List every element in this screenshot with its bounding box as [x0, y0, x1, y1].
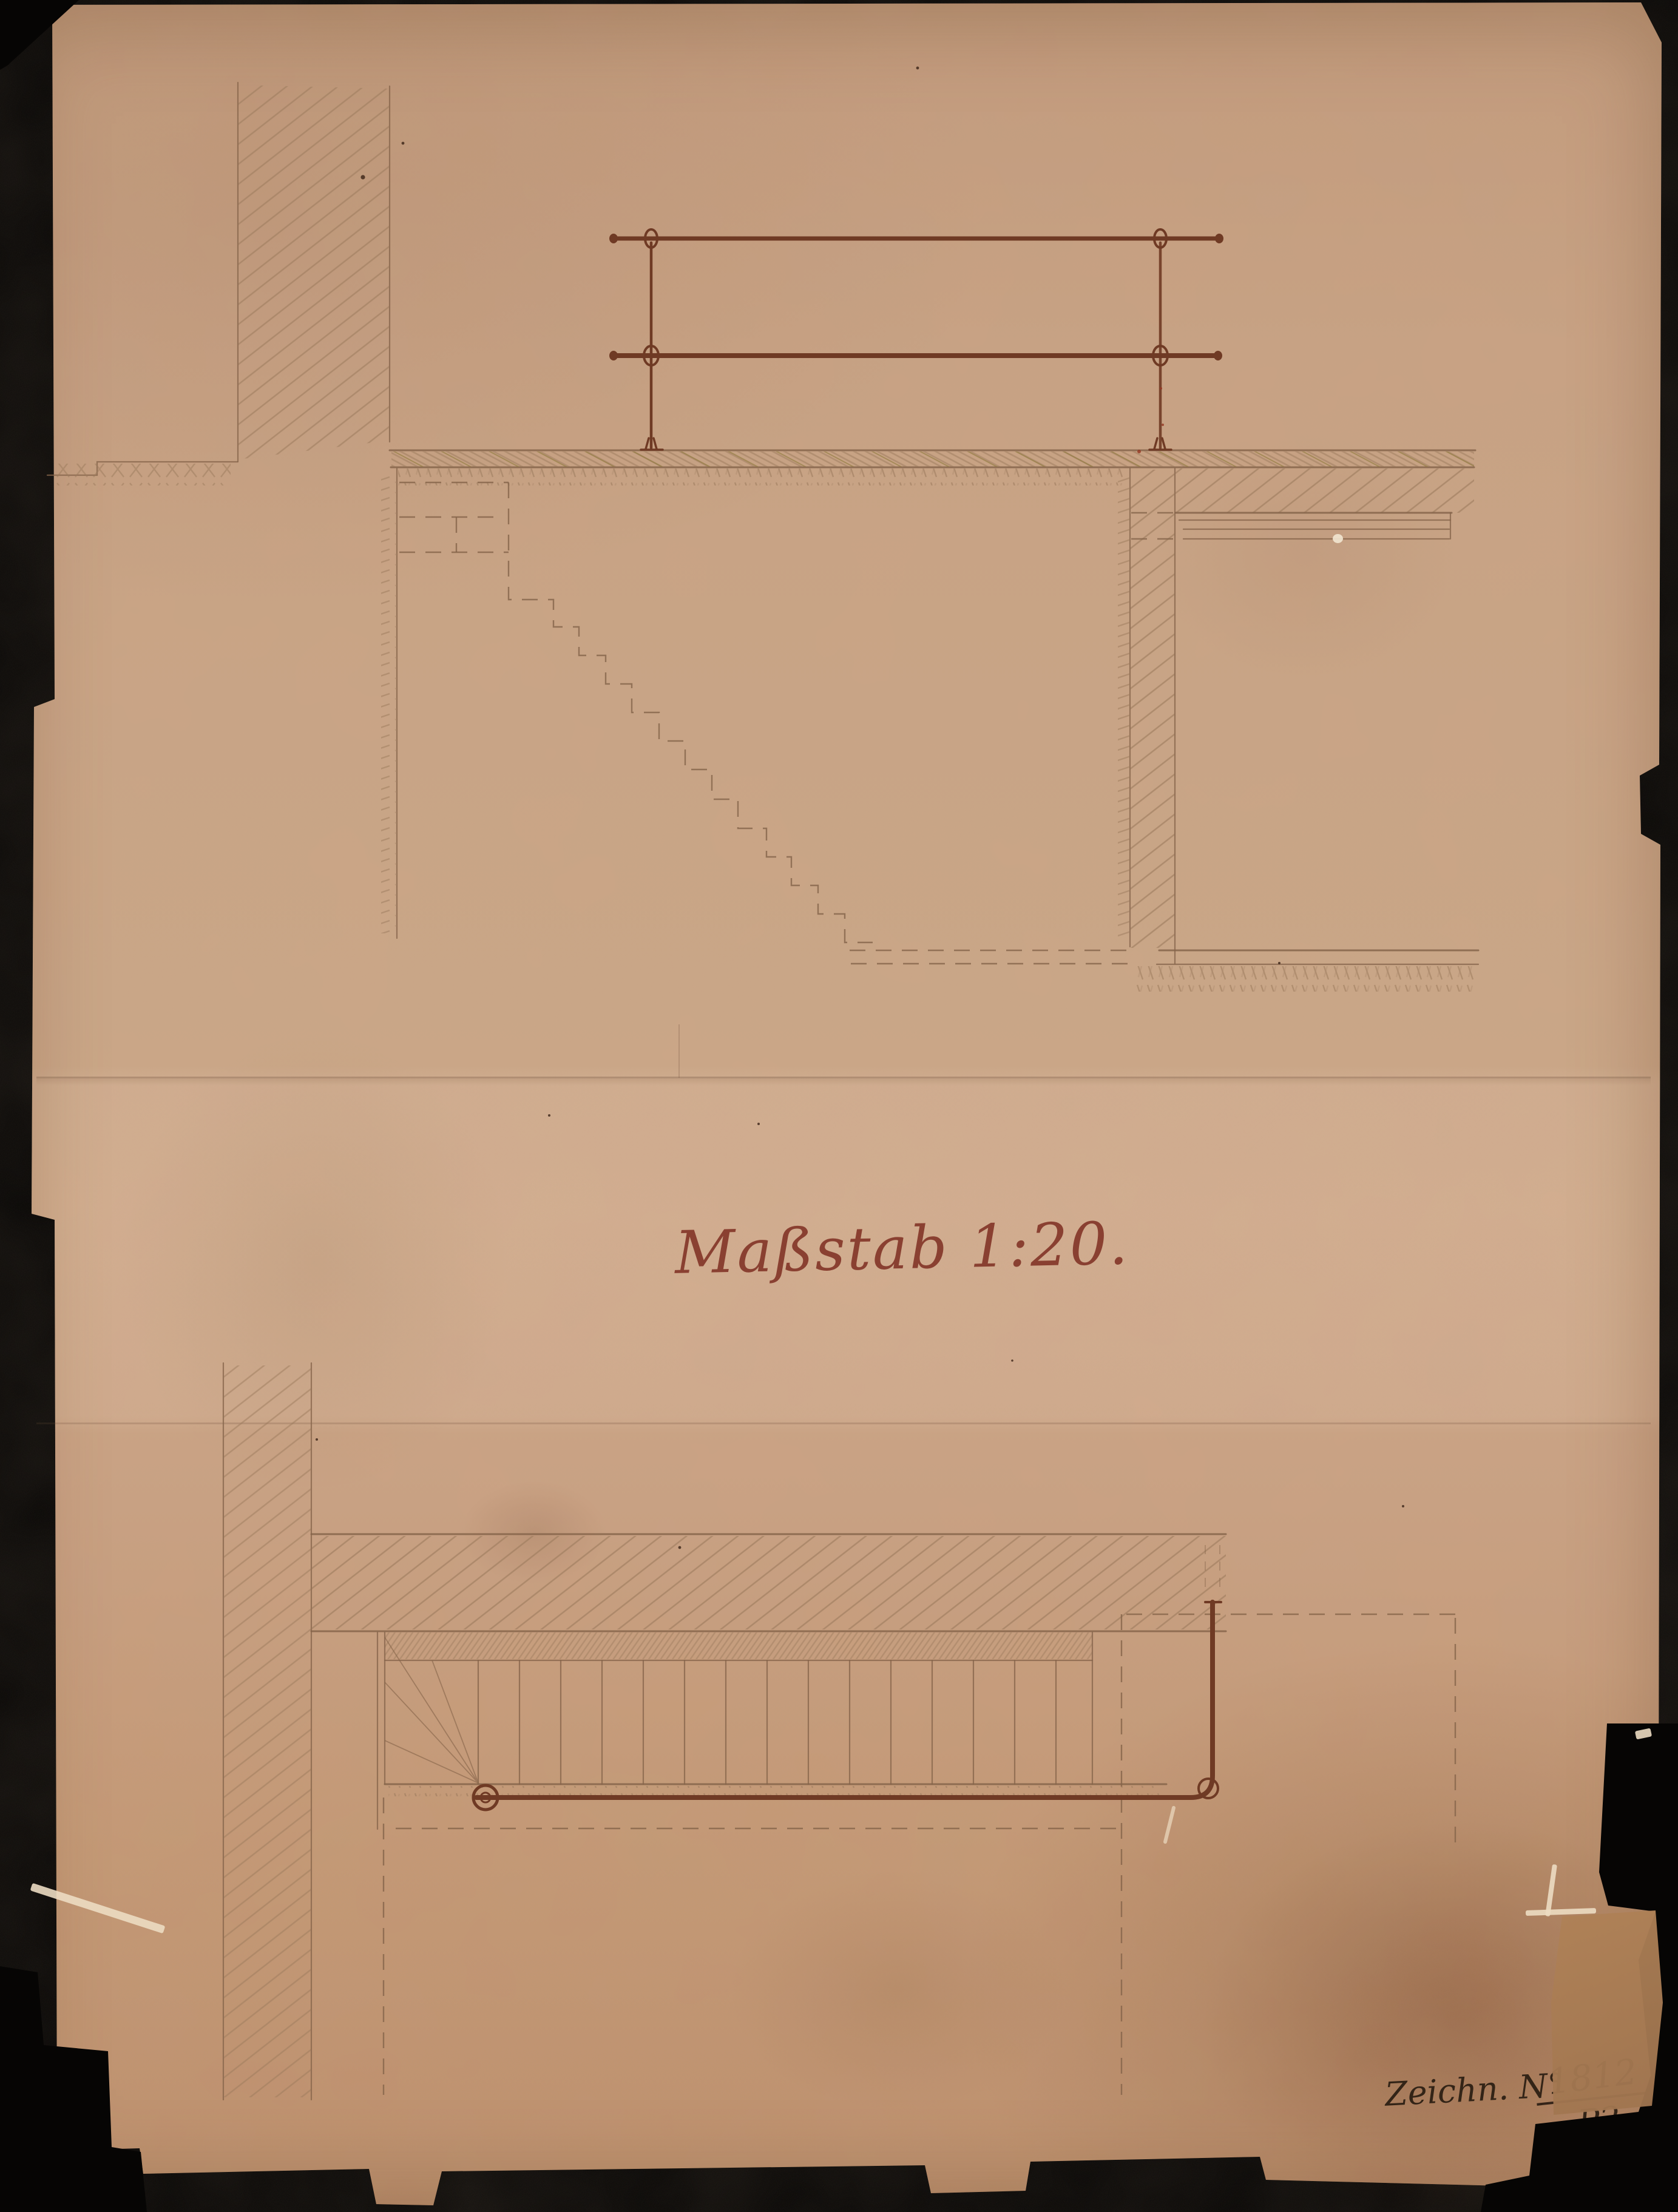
- plan-left-wall-hatch: [224, 1365, 311, 2097]
- paper-chip: [1333, 534, 1343, 543]
- railing-cap: [1215, 234, 1223, 243]
- left-wall-hatch: [239, 85, 389, 459]
- scanned-drawing-canvas: Maßstab 1:20. Zeichn. N° 1812 P2: [0, 0, 1678, 2212]
- darker-paper-flap: [1546, 1906, 1663, 2115]
- left-floor-ticks: [53, 464, 231, 485]
- right-wall-hatch: [1131, 470, 1174, 948]
- lintel-hatch: [1176, 468, 1474, 513]
- railing-cap: [609, 234, 618, 243]
- plan-bottom-ticks: [388, 1786, 1160, 1796]
- right-wall-ticks: [1118, 477, 1130, 939]
- stairwell-wall-ticks: [381, 475, 396, 933]
- plan-stringer-hatch: [385, 1632, 1092, 1659]
- floor-slab-hatch-olive: [391, 452, 1474, 467]
- room-floor-ticks: [1136, 966, 1473, 992]
- railing-cap: [609, 351, 618, 360]
- railing-cap: [1214, 351, 1222, 360]
- plan-top-wall-hatch: [312, 1536, 1226, 1629]
- drawing-linework: [0, 0, 1678, 2212]
